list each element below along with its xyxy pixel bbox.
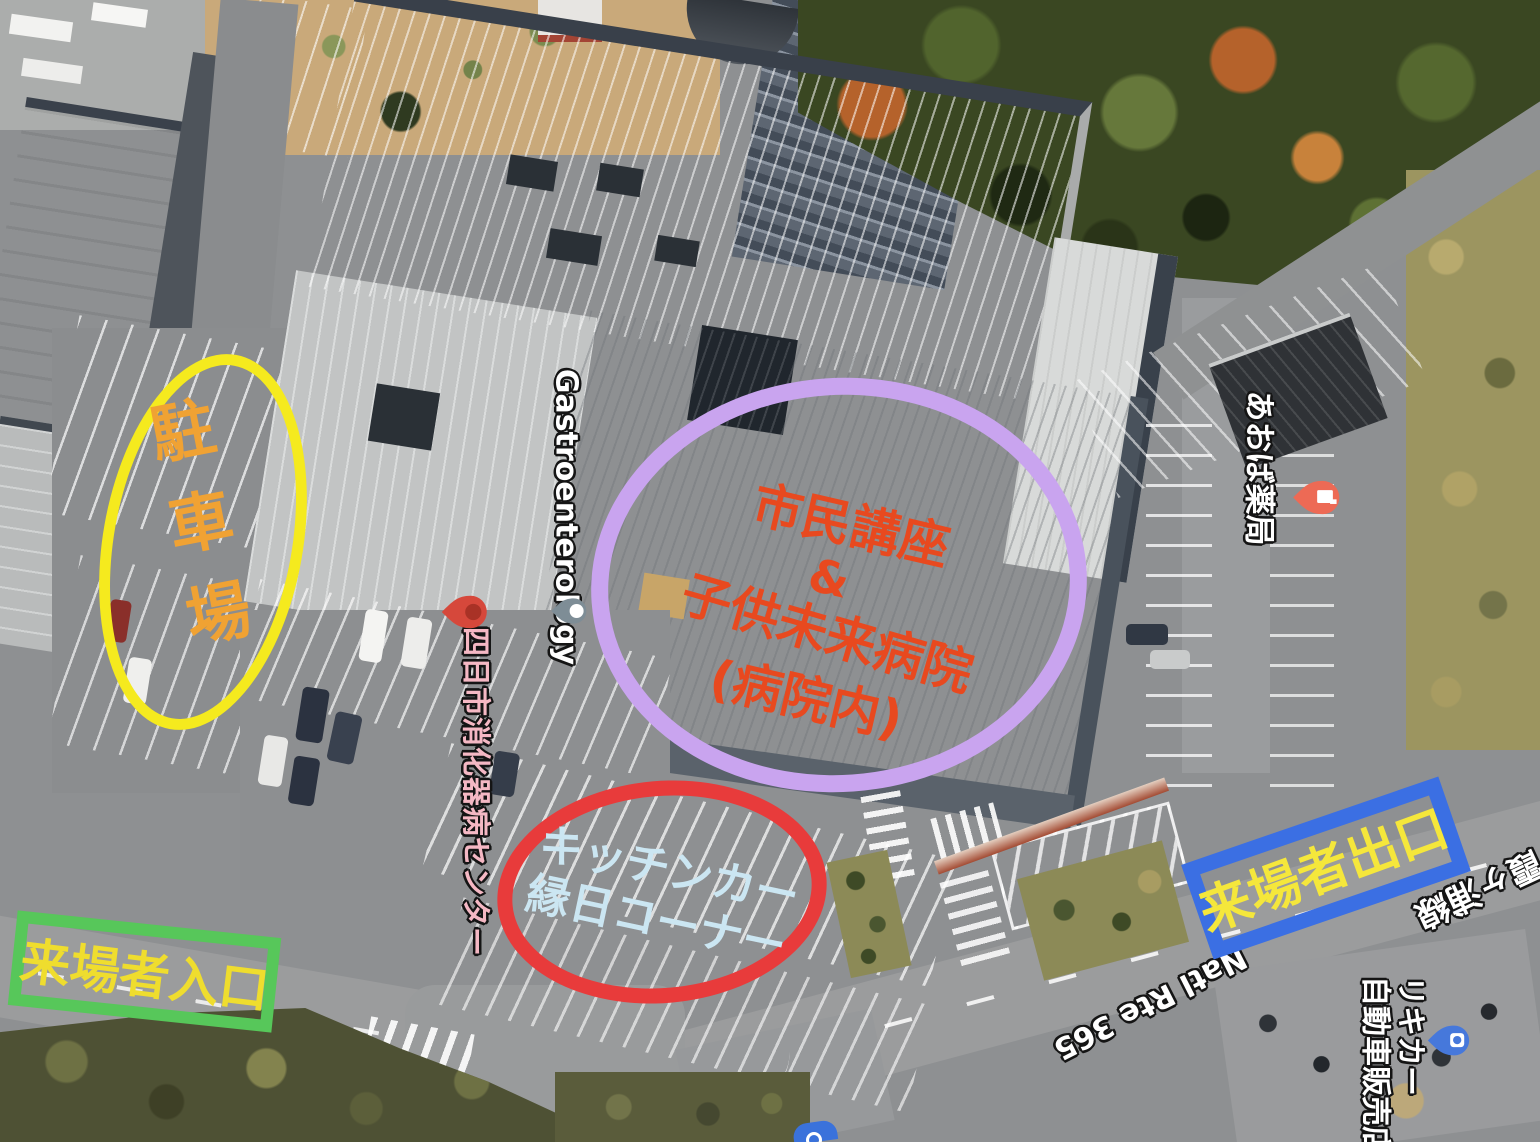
- pharmacy-pin-icon[interactable]: [1291, 479, 1347, 516]
- pharmacy-name-label[interactable]: あおば薬局: [1240, 391, 1285, 546]
- car-dealer-label[interactable]: リキカー 自動車販売店: [1358, 976, 1427, 1142]
- hospital-name-label[interactable]: 四日市消化器病センター: [457, 627, 499, 957]
- partial-balloon-glyph: [806, 1132, 822, 1142]
- roadside-vegetation: [555, 1072, 810, 1142]
- hospital-pin-icon[interactable]: [440, 594, 494, 630]
- annotated-satellite-map: Gastroenterology 四日市消化器病センター あおば薬局 Natl …: [0, 0, 1540, 1142]
- gastroenterology-pin-icon[interactable]: [550, 597, 592, 625]
- car: [1126, 624, 1168, 645]
- car: [1150, 650, 1190, 669]
- grass-strip: [1406, 170, 1540, 750]
- roof-opening: [368, 383, 440, 450]
- car-dealer-pin-icon[interactable]: [1426, 1024, 1476, 1057]
